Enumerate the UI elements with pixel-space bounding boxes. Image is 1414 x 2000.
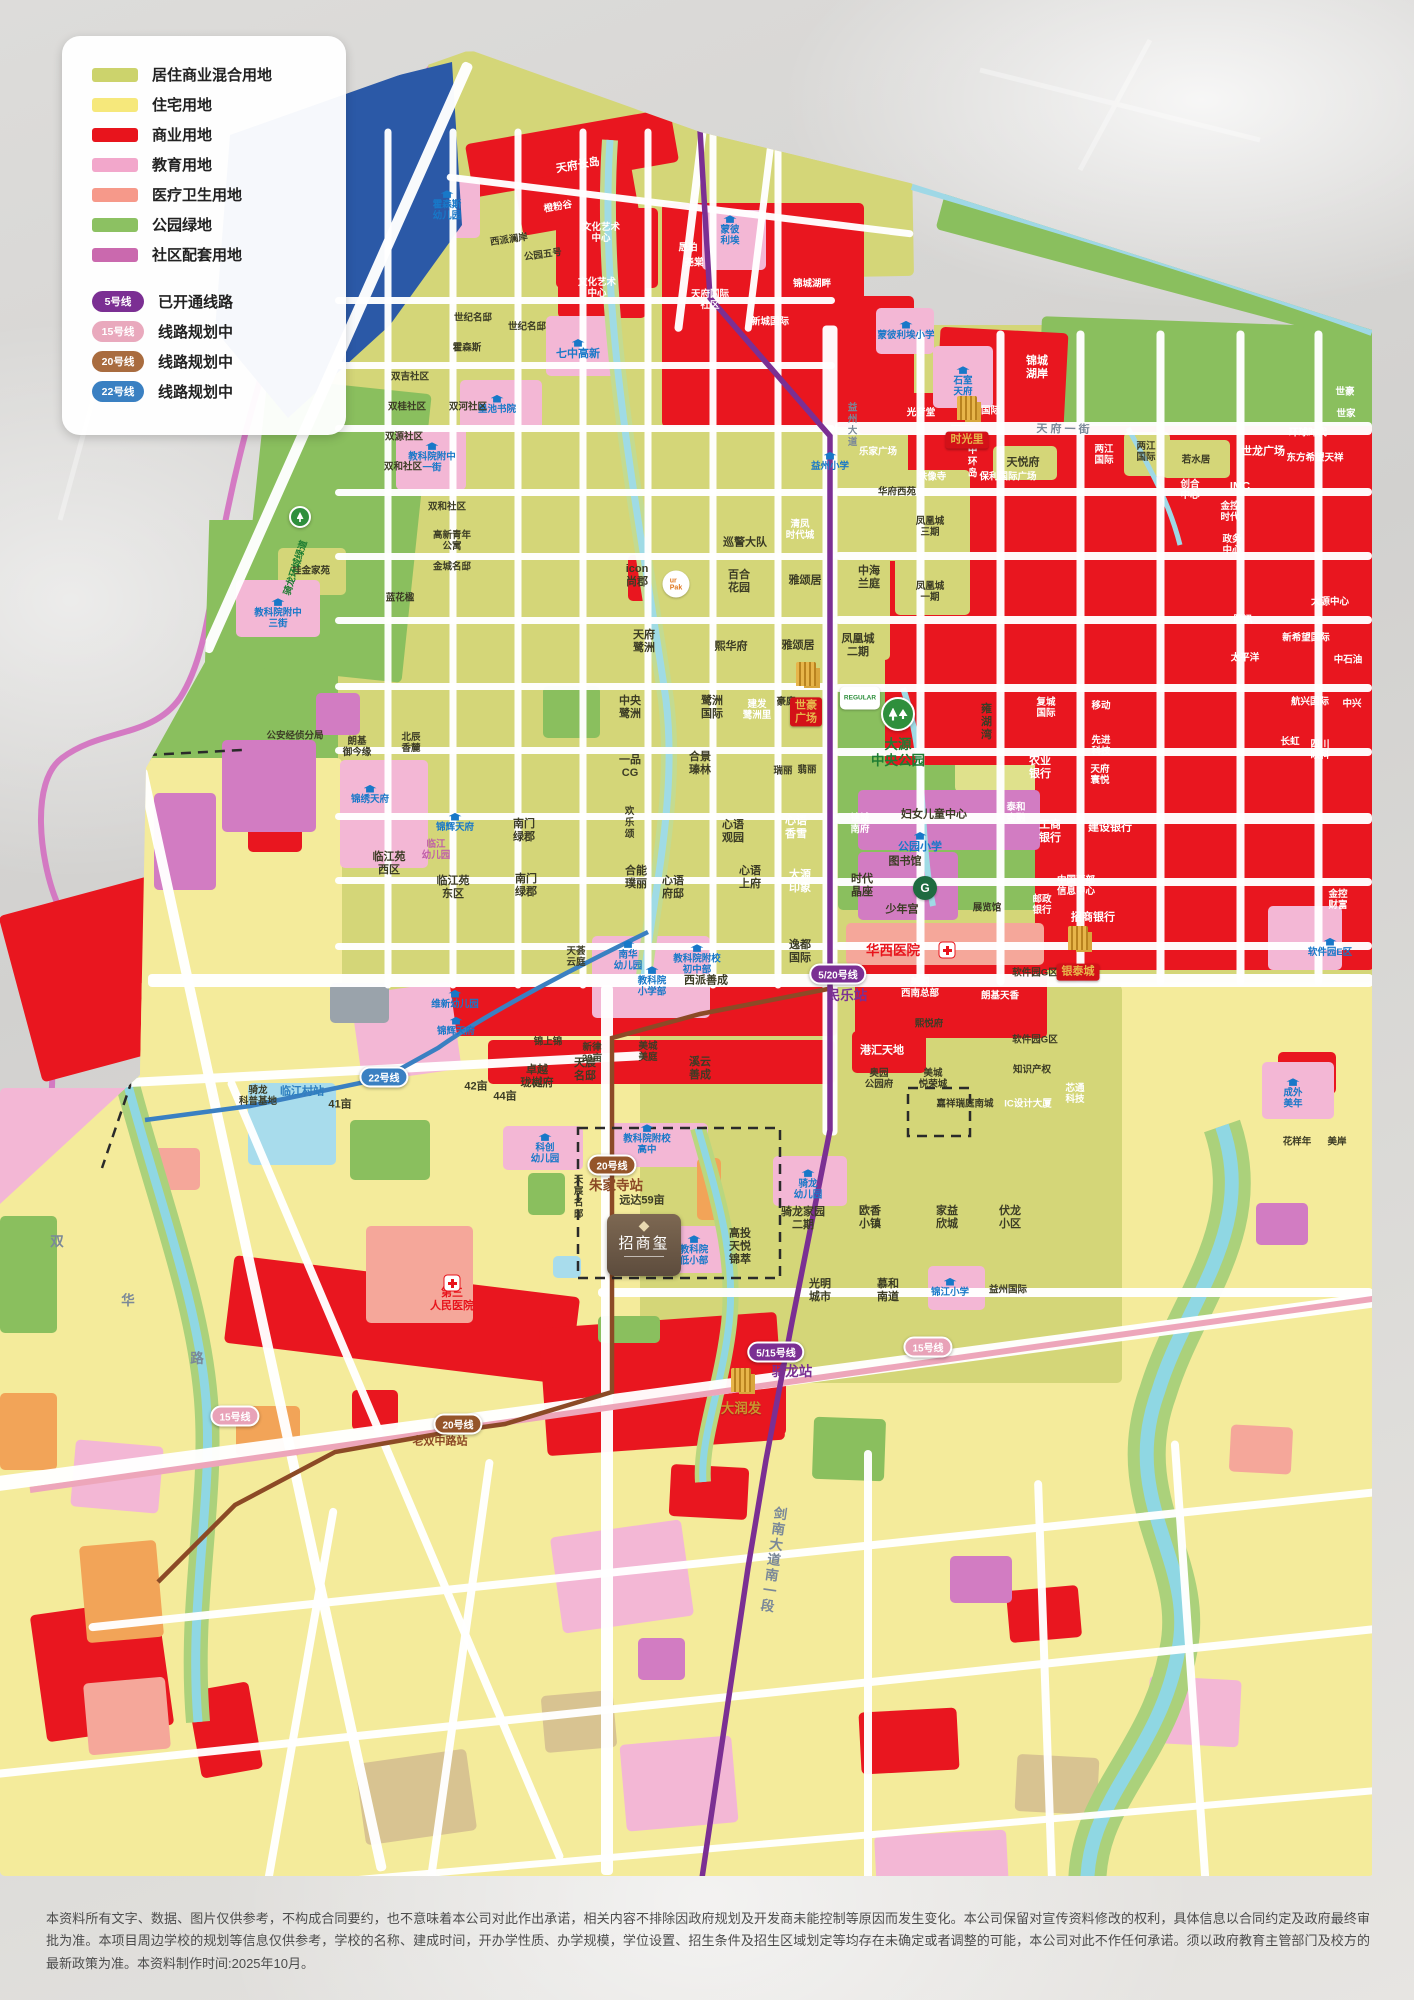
- map-label: 政务 中心: [1222, 534, 1241, 556]
- map-label: 伏龙 小区: [999, 1205, 1021, 1231]
- map-label: 欧香 小镇: [859, 1205, 881, 1231]
- map-label: 高投 天悦 锦萃: [729, 1228, 751, 1267]
- map-label: 美国 西南总部: [901, 977, 939, 999]
- map-label: 金控 时代: [1220, 501, 1239, 523]
- map-label: 高新青年 公寓: [433, 530, 471, 552]
- map-label: 锦江小学: [931, 1278, 969, 1298]
- map-label: 晟珀: [678, 242, 697, 253]
- map-poster: 天府长岛橙粉谷文化艺术 中心文化艺术 中心西派澜岸公园五号霍森斯 幼儿园蒙彼 利…: [0, 0, 1414, 2000]
- map-label: 蓝花楹: [386, 592, 415, 603]
- map-label: 欢乐颂: [622, 806, 633, 841]
- map-label: 瑞丽: [773, 765, 792, 776]
- map-label: 东方希望天祥: [1286, 452, 1343, 463]
- map-label: 家益 欣城: [936, 1205, 958, 1231]
- map-label: 腾讯: [1233, 614, 1252, 625]
- map-label: 南门 绿郡: [513, 818, 535, 844]
- map-label: 环球时代: [1289, 427, 1327, 438]
- legend-item: 医疗卫生用地: [92, 184, 322, 205]
- park-tree-icon: [881, 697, 915, 731]
- legend-label: 社区配套用地: [152, 244, 242, 265]
- map-label: 大源 印象: [789, 869, 811, 895]
- map-label: 熙华府: [715, 641, 748, 654]
- map-label: 复城 国际: [1036, 697, 1055, 719]
- diamond-icon: ◆: [607, 1218, 681, 1232]
- map-label: 临江苑 东区: [437, 875, 470, 901]
- metro-line-badge: 20号线: [92, 351, 144, 372]
- legend-metro-item: 5号线已开通线路: [92, 291, 322, 312]
- map-label: 港汇天地: [860, 1045, 904, 1058]
- map-label: 少年宫: [886, 904, 919, 917]
- map-legend: 居住商业混合用地住宅用地商业用地教育用地医疗卫生用地公园绿地社区配套用地 5号线…: [62, 36, 346, 435]
- map-label: 农业 银行: [1029, 755, 1051, 781]
- map-label: 天 府 一 街: [1036, 423, 1089, 437]
- shiguangli-icon: [957, 396, 977, 420]
- map-label: 双和社区: [428, 501, 466, 512]
- map-label: 美岸: [1327, 1136, 1346, 1147]
- map-label: 双: [50, 1234, 64, 1250]
- map-label: 锦绣天府: [351, 785, 389, 805]
- metro-station-badge: 20号线: [587, 1155, 636, 1176]
- map-label: 南门 绿郡: [515, 873, 537, 899]
- yintai-icon: [1068, 926, 1088, 950]
- map-label: 美城 美庭: [638, 1041, 657, 1063]
- map-label: 太平洋: [1231, 652, 1260, 663]
- map-label: 中央 鹭洲: [619, 695, 641, 721]
- urpak-logo: ur Pak: [663, 571, 690, 598]
- map-label: 远达59亩: [619, 1195, 664, 1208]
- legend-swatch: [92, 218, 138, 232]
- map-label: 尧棠: [684, 257, 703, 268]
- map-label: 移动: [1091, 700, 1110, 711]
- map-label: 大源 中央公园: [871, 737, 925, 769]
- legend-item: 住宅用地: [92, 94, 322, 115]
- map-label: 巡警大队: [723, 537, 767, 550]
- map-label: 天府国际 社区: [691, 289, 729, 311]
- map-label: 天府 寰悦: [1090, 764, 1109, 786]
- map-label: 老双中路站: [413, 1436, 468, 1449]
- map-label: 维新幼儿园: [431, 990, 479, 1010]
- map-label: 光音堂: [907, 407, 936, 418]
- map-label: 嘉祥瑞庭南城: [936, 1098, 993, 1109]
- legend-metro-item: 20号线线路规划中: [92, 351, 322, 372]
- map-label: 教科院附校 初中部: [673, 944, 721, 975]
- map-label: 保利国际广场: [979, 471, 1036, 482]
- map-label: 大润发: [721, 1401, 762, 1417]
- map-label: 妇女儿童中心: [901, 809, 967, 822]
- metro-line-20: [158, 988, 833, 1582]
- map-label: 益州国际: [989, 1284, 1027, 1295]
- map-label: 图书馆: [889, 856, 922, 869]
- map-label: 四川 眼科: [1310, 739, 1329, 761]
- map-label: 中国西部 信息中心: [1057, 875, 1095, 897]
- map-label: 两江 国际: [1094, 444, 1113, 466]
- legend-swatch: [92, 158, 138, 172]
- legend-label: 线路规划中: [158, 351, 233, 372]
- legend-item: 商业用地: [92, 124, 322, 145]
- map-label: 卓越 珑樾府: [521, 1064, 554, 1090]
- map-label: 新律 29亩: [582, 1042, 602, 1064]
- map-label: 教科院附中 三街: [254, 598, 302, 629]
- legend-metro-item: 22号线线路规划中: [92, 381, 322, 402]
- map-label: 熙悦府: [915, 1018, 944, 1029]
- map-label: 双桂社区: [388, 401, 426, 412]
- darunfa-icon: [731, 1368, 751, 1392]
- map-label: 光明 城市: [809, 1278, 831, 1304]
- map-label: 临江村站: [280, 1086, 324, 1099]
- map-label: 铁像寺: [918, 471, 947, 482]
- map-label: 双吉社区: [391, 371, 429, 382]
- map-label: 两江 国际: [1136, 441, 1155, 463]
- map-label: 双和社区: [384, 461, 422, 472]
- map-label: 朗基天香: [981, 990, 1019, 1001]
- map-label: 华西医院: [866, 943, 920, 959]
- legend-swatch: [92, 128, 138, 142]
- legend-label: 住宅用地: [152, 94, 212, 115]
- map-label: 霍森斯: [453, 342, 482, 353]
- map-label: 鹭洲 国际: [701, 695, 723, 721]
- map-label: 新希望国际: [1282, 632, 1330, 643]
- metro-station-badge: 15号线: [210, 1406, 259, 1427]
- legend-label: 已开通线路: [158, 291, 233, 312]
- map-label: 骑龙家园 二期: [781, 1206, 825, 1232]
- map-label: 长虹: [1280, 736, 1299, 747]
- legend-label: 商业用地: [152, 124, 212, 145]
- map-label: 慕和 南道: [877, 1278, 899, 1304]
- project-boundary: [102, 750, 970, 1278]
- legend-label: 教育用地: [152, 154, 212, 175]
- map-label: 心语 府邸: [662, 875, 684, 901]
- map-label: 霍森斯 幼儿园: [433, 190, 462, 221]
- map-label: 教科院附校 高中: [623, 1124, 671, 1155]
- map-label: 蒙彼 利埃: [720, 215, 739, 246]
- map-label: IC设计大厦: [1004, 1098, 1052, 1109]
- map-label: 文化艺术 中心: [582, 222, 620, 244]
- map-label: 教科院 小学部: [638, 966, 667, 997]
- map-label: 新城国际: [751, 316, 789, 327]
- map-label: 建发 鹭洲里: [743, 699, 772, 721]
- map-label: 一品 CG: [619, 754, 641, 780]
- disclaimer-text: 本资料所有文字、数据、图片仅供参考，不构成合同要约，也不意味着本公司对此作出承诺…: [46, 1908, 1370, 1975]
- map-label: 锦城湖畔: [793, 278, 831, 289]
- map-label: 建设银行: [1088, 822, 1132, 835]
- map-label: 软件园G区: [1012, 967, 1057, 978]
- map-label: 42亩: [464, 1081, 487, 1094]
- legend-item: 居住商业混合用地: [92, 64, 322, 85]
- map-label: 乐家广场: [859, 446, 897, 457]
- map-label: 锦城 湖岸: [1026, 355, 1048, 381]
- map-label: 教科院 低小部: [680, 1235, 709, 1266]
- map-label: 民乐站: [827, 988, 868, 1004]
- map-label: 公园小学: [898, 832, 942, 854]
- metro-line-5: [690, 130, 830, 1988]
- map-label: 44亩: [493, 1091, 516, 1104]
- metro-station-badge: 22号线: [359, 1067, 408, 1088]
- legend-item: 公园绿地: [92, 214, 322, 235]
- map-label: 知识产权: [1013, 1064, 1051, 1075]
- map-label: 奥园 公园府: [865, 1068, 894, 1090]
- zhaoshangxi-logo: ◆ 招商玺: [607, 1214, 681, 1276]
- map-label: 蒙彼利埃小学: [877, 321, 934, 341]
- map-label: 凤凰城 三期: [916, 516, 945, 538]
- map-label: 凤凰城 一期: [916, 581, 945, 603]
- map-label: 软件园G区: [1012, 1034, 1057, 1045]
- map-label: 合能 璞丽: [625, 865, 647, 891]
- map-label: 大源中心: [1311, 596, 1349, 607]
- legend-swatch: [92, 248, 138, 262]
- map-label: 清凤 时代城: [786, 519, 815, 541]
- metro-station-badge: 5/15号线: [747, 1342, 804, 1363]
- legend-label: 居住商业混合用地: [152, 64, 272, 85]
- map-label: 逸都 国际: [789, 939, 811, 965]
- map-label: 七中高新: [556, 339, 600, 361]
- map-label: 时代 晶座: [851, 873, 873, 899]
- map-label: 百合 花园: [728, 569, 750, 595]
- map-label: 金城名邸: [433, 561, 471, 572]
- map-label: 天宸名邸: [571, 1174, 582, 1220]
- map-label: 合景 瑧林: [689, 751, 711, 777]
- legend-swatch: [92, 188, 138, 202]
- map-label: 骑龙 幼儿园: [794, 1169, 823, 1200]
- map-label: 路: [190, 1351, 204, 1367]
- map-label: 软件园E区: [1308, 938, 1352, 958]
- map-label: 创合 中心: [1180, 479, 1199, 501]
- map-label: 雅颂居: [789, 575, 822, 588]
- map-label: 天悦府: [1007, 457, 1040, 470]
- metro-station-badge: 15号线: [903, 1337, 952, 1358]
- map-label: 心语 上府: [739, 865, 761, 891]
- gspace-logo: G: [913, 876, 937, 900]
- map-label: 雍湖湾: [979, 703, 992, 742]
- map-label: 骑龙站: [772, 1364, 813, 1380]
- map-label: 西派善成: [684, 975, 728, 988]
- map-label: 锦辉天府: [436, 813, 474, 833]
- map-label: 天荟 云庭: [566, 946, 585, 968]
- map-label: 心语 香雪: [785, 815, 807, 841]
- hospital-cross-icon: [444, 1275, 461, 1292]
- metro-line-15: [30, 1295, 1400, 1490]
- map-label: 成外 美年: [1283, 1078, 1302, 1109]
- legend-label: 医疗卫生用地: [152, 184, 242, 205]
- map-label: 锦辉天府: [437, 1017, 475, 1037]
- map-label: 临江 幼儿园: [422, 839, 451, 861]
- map-label: 锦城 南府: [850, 813, 869, 835]
- legend-item: 教育用地: [92, 154, 322, 175]
- map-label: 中石油: [1334, 654, 1363, 665]
- metro-line-badge: 22号线: [92, 381, 144, 402]
- metro-line-badge: 5号线: [92, 291, 144, 312]
- greenway-tree-icon: [289, 506, 311, 528]
- map-label: 泰和 金融: [1006, 802, 1025, 824]
- map-label: 展览馆: [973, 902, 1002, 913]
- map-label: 先进 科技: [1091, 735, 1110, 757]
- map-label: 航兴国际: [1291, 696, 1329, 707]
- map-label: 工商 银行: [1039, 819, 1061, 845]
- map-label: 益州大道: [845, 402, 856, 448]
- map-label: 心语 观园: [722, 819, 744, 845]
- map-label: 石室 天府: [953, 366, 972, 397]
- shihao-plaza-label: 世豪 广场: [790, 697, 822, 726]
- map-label: 溪云 善成: [689, 1056, 711, 1082]
- map-label: 世龙广场: [1241, 446, 1285, 459]
- map-label: 世纪名邸: [454, 312, 492, 323]
- regular-logo: REGULAR: [840, 687, 880, 710]
- map-label: 世纪名邸: [508, 321, 546, 332]
- legend-label: 线路规划中: [158, 321, 233, 342]
- map-label: 文化艺术 中心: [578, 277, 616, 299]
- map-label: 中环岛: [965, 445, 976, 480]
- map-label: 科创 幼儿园: [531, 1133, 560, 1164]
- metro-station-badge: 5/20号线: [809, 964, 866, 985]
- map-label: 益州小学: [811, 452, 849, 472]
- map-label: 金控 财富: [1328, 889, 1347, 911]
- map-label: 美城 悦荣城: [919, 1068, 948, 1090]
- legend-metro-item: 15号线线路规划中: [92, 321, 322, 342]
- map-label: 锦上锦: [534, 1036, 563, 1047]
- legend-swatch: [92, 68, 138, 82]
- shihao-plaza-icon: [796, 662, 816, 686]
- metro-line-badge: 15号线: [92, 321, 144, 342]
- map-label: 41亩: [328, 1099, 351, 1112]
- map-label: 骑龙 科普基地: [239, 1085, 277, 1107]
- map-label: IMC: [1230, 481, 1250, 494]
- map-label: 世家: [1336, 408, 1355, 419]
- map-label: 双源社区: [385, 431, 423, 442]
- map-label: 招商银行: [1071, 912, 1115, 925]
- map-label: 芯通 科技: [1065, 1083, 1084, 1105]
- legend-item: 社区配套用地: [92, 244, 322, 265]
- map-label: 临江苑 西区: [373, 851, 406, 877]
- map-label: 朗基 御今缘: [343, 736, 372, 758]
- map-label: 天府 鹭洲: [633, 629, 655, 655]
- legend-label: 线路规划中: [158, 381, 233, 402]
- map-label: 华: [121, 1293, 135, 1309]
- map-label: 翡丽: [797, 764, 816, 775]
- map-label: 邮政 银行: [1032, 894, 1051, 916]
- map-label: 花样年: [1283, 1136, 1312, 1147]
- metro-station-badge: 20号线: [433, 1414, 482, 1435]
- map-label: 凤凰城 二期: [842, 633, 875, 659]
- map-label: 北辰 香麓: [401, 732, 420, 754]
- map-label: 中兴: [1342, 698, 1361, 709]
- map-label: icon 尚郡: [626, 563, 649, 589]
- map-label: 雅颂居: [782, 640, 815, 653]
- map-label: 华府西苑: [878, 486, 916, 497]
- legend-swatch: [92, 98, 138, 112]
- legend-label: 公园绿地: [152, 214, 212, 235]
- map-label: 公安经侦分局: [266, 730, 323, 741]
- hospital-cross-icon: [939, 942, 956, 959]
- map-label: 中海 兰庭: [858, 565, 880, 591]
- map-label: 若水居: [1182, 454, 1211, 465]
- map-label: 朱家寺站: [589, 1178, 643, 1194]
- shiguangli-label: 时光里: [946, 432, 989, 449]
- map-label: 双河社区: [449, 401, 487, 412]
- map-label: 世豪: [1335, 386, 1354, 397]
- yintai-label: 银泰城: [1057, 964, 1100, 981]
